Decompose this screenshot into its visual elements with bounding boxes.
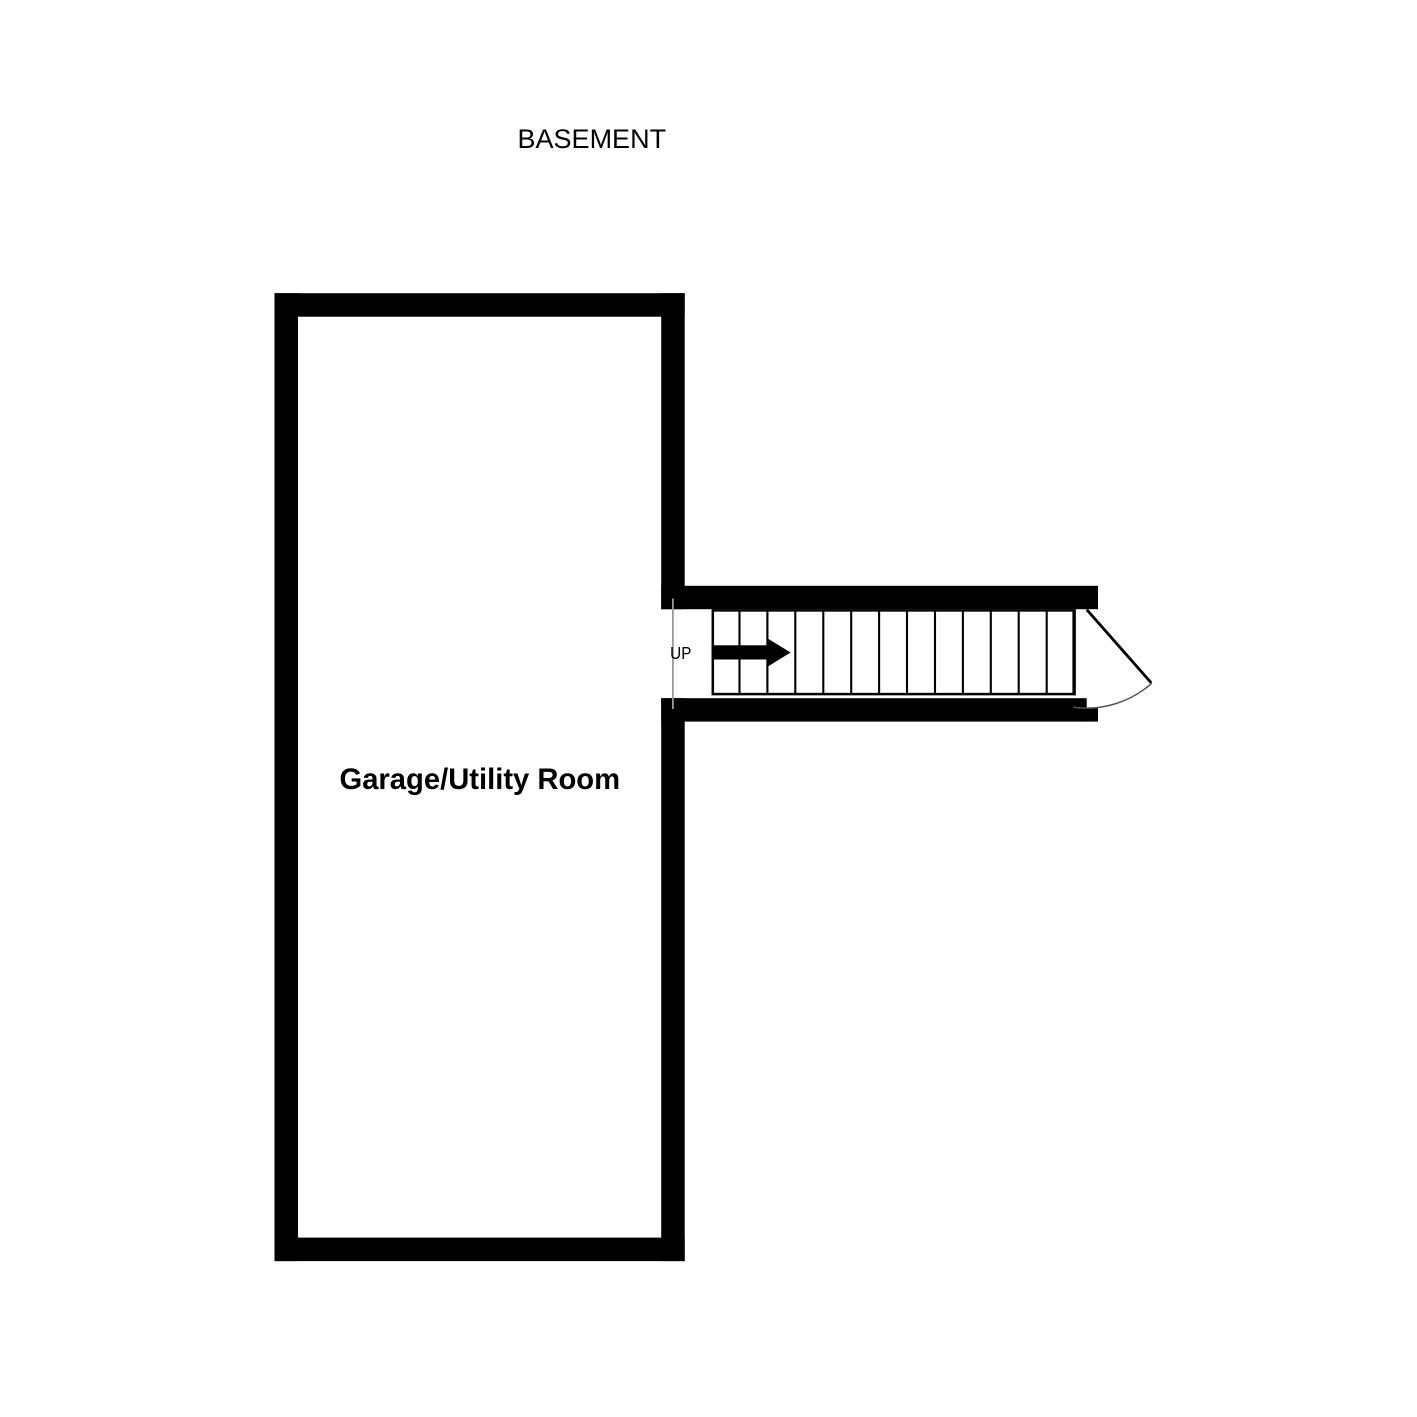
svg-text:Garage/Utility Room: Garage/Utility Room bbox=[340, 764, 621, 796]
svg-text:BASEMENT: BASEMENT bbox=[518, 124, 667, 154]
svg-text:UP: UP bbox=[670, 643, 691, 663]
